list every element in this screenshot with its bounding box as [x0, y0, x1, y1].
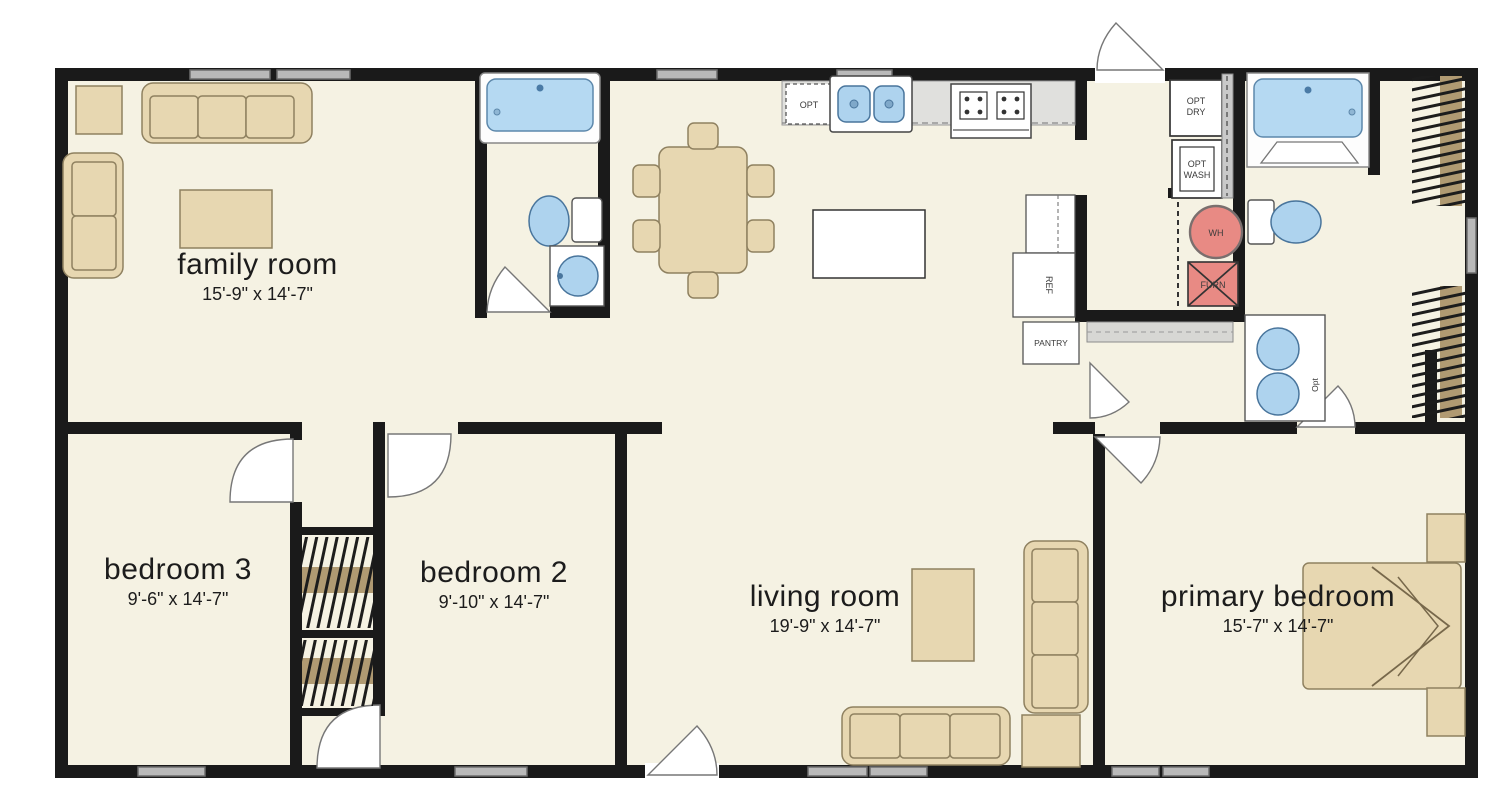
living-sofa-cushion	[850, 714, 900, 758]
wall-hall-top	[1075, 310, 1245, 322]
wall-kitchen-right-top	[1075, 68, 1087, 140]
dining-chair	[633, 165, 660, 197]
water-heater-label: WH	[1209, 228, 1224, 238]
side-table	[76, 86, 122, 134]
washer-label-1: OPT	[1188, 159, 1207, 169]
wall-primary-top	[1160, 422, 1297, 434]
toilet-bowl	[529, 196, 569, 246]
closet2-hangers	[302, 640, 373, 706]
living-sofa2-cushion	[1032, 602, 1078, 655]
wall-primary-top2	[1355, 422, 1465, 434]
vanity-sink	[558, 256, 598, 296]
closet1-hangers	[302, 537, 373, 628]
dryer-label-1: OPT	[1187, 96, 1206, 106]
sink-drain-right	[885, 100, 893, 108]
dining-chair	[688, 272, 718, 298]
wall-living-primary	[1093, 434, 1105, 765]
wall-closet-divider-top	[1368, 68, 1380, 175]
loveseat-cushion	[72, 162, 116, 216]
floor-plan: OPT REF PANTRY OPT DRY OPT WASH	[0, 0, 1500, 805]
closet-hangers-bottom	[1412, 286, 1465, 418]
toilet-tank	[572, 198, 602, 242]
window-primary-2	[1163, 767, 1209, 776]
refrigerator	[1013, 253, 1075, 317]
sofa-cushion	[198, 96, 246, 138]
tub-faucet	[494, 109, 500, 115]
dining-table	[659, 147, 747, 273]
dining-chair	[688, 123, 718, 149]
dishwasher-label: OPT	[800, 100, 819, 110]
wall-closet-right	[373, 422, 385, 716]
living-side-table	[1022, 715, 1080, 767]
loveseat-cushion	[72, 216, 116, 270]
wall-bottom	[55, 765, 1478, 778]
window-living-2	[870, 767, 927, 776]
window-closet-right	[1467, 218, 1476, 273]
primary-toilet-bowl	[1271, 201, 1321, 243]
wall-hall-stub	[1053, 422, 1095, 434]
window-family-1	[190, 70, 270, 79]
kitchen-island	[813, 210, 925, 278]
floor-plan-drawing: OPT REF PANTRY OPT DRY OPT WASH	[0, 0, 1500, 805]
living-sofa2-cushion	[1032, 655, 1078, 708]
closet-hangers-top	[1412, 76, 1465, 206]
nightstand	[1427, 514, 1465, 562]
primary-sink-2	[1257, 373, 1299, 415]
window-living-1	[808, 767, 867, 776]
sofa-cushion	[150, 96, 198, 138]
vanity-faucet	[557, 273, 563, 279]
window-primary-1	[1112, 767, 1159, 776]
wall-closet-top	[302, 527, 373, 535]
dining-chair	[747, 165, 774, 197]
coffee-table	[180, 190, 272, 248]
bedroom-closets	[302, 537, 373, 706]
living-coffee-table	[912, 569, 974, 661]
primary-tub-faucet	[1349, 109, 1355, 115]
washer-label-2: WASH	[1184, 170, 1211, 180]
living-sofa2-cushion	[1032, 549, 1078, 602]
nightstand	[1427, 688, 1465, 736]
window-family-2	[277, 70, 350, 79]
sink-drain-left	[850, 100, 858, 108]
primary-sink-1	[1257, 328, 1299, 370]
wall-bedroom3-top	[55, 422, 302, 434]
refrigerator-label: REF	[1044, 276, 1054, 295]
cabinet	[1026, 195, 1075, 253]
wall-bedroom2-top	[458, 422, 662, 434]
pantry-label: PANTRY	[1034, 338, 1068, 348]
wall-bedroom2-right	[615, 422, 627, 765]
living-sofa-cushion	[900, 714, 950, 758]
back-door	[1097, 23, 1163, 70]
vanity-opt-label: Opt	[1310, 378, 1320, 392]
dryer-label-2: DRY	[1187, 107, 1206, 117]
sofa-cushion	[246, 96, 294, 138]
window-dining	[657, 70, 717, 79]
wall-right	[1465, 68, 1478, 778]
wall-bedroom3-right-stub	[290, 422, 302, 440]
furnace-label: FURN	[1201, 280, 1226, 290]
tub-drain	[537, 85, 544, 92]
primary-tub-drain	[1305, 87, 1312, 94]
living-sofa-cushion	[950, 714, 1000, 758]
wall-closet-mid	[302, 630, 373, 638]
shower-step	[1261, 142, 1358, 163]
window-bedroom2	[455, 767, 527, 776]
primary-toilet-tank	[1248, 200, 1274, 244]
dining-chair	[633, 220, 660, 252]
window-bedroom3	[138, 767, 205, 776]
wall-kitchen-right-mid	[1075, 195, 1087, 322]
wall-bedroom3-right	[290, 502, 302, 765]
dining-chair	[747, 220, 774, 252]
